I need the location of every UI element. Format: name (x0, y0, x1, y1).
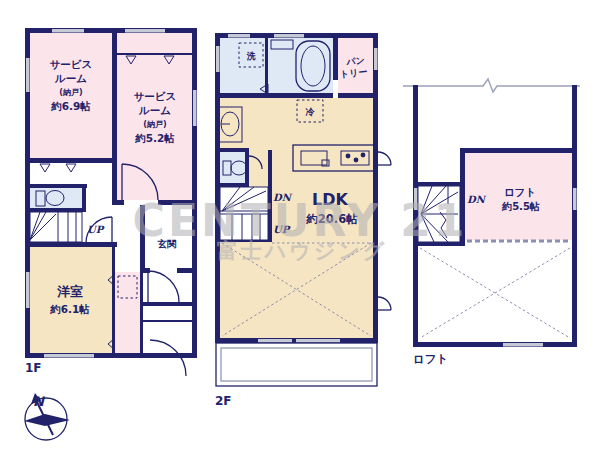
loft-break-line (403, 79, 580, 92)
1f-service-room2-line1: サービス (134, 90, 177, 102)
1f-service-room2-size: 約5.2帖 (134, 132, 175, 144)
floor-plan-page: サービス ルーム (納戸) 約6.9帖 サービス ルーム (納戸) 約5.2帖 … (0, 0, 600, 450)
2f-fridge-label: 冷 (306, 107, 316, 117)
2f-laundry-label: 洗 (247, 51, 257, 61)
2f-floor-label: 2F (215, 394, 232, 408)
loft-floor-label: ロフト (413, 352, 448, 366)
1f-service-room2-line2: ルーム (138, 104, 171, 116)
1f-stairs-up-label: UP (87, 224, 105, 235)
2f-pantry-line1: パン (345, 55, 365, 67)
loft-room-size: 約5.5帖 (501, 201, 540, 212)
loft-void-area (420, 248, 570, 338)
compass-icon: N (24, 393, 70, 440)
1f-western-room-size: 約6.1帖 (49, 303, 90, 315)
compass-north-label: N (33, 394, 46, 409)
watermark-company: 富士ハウジング (217, 239, 387, 263)
1f-floor-label: 1F (25, 361, 42, 375)
loft-stairs-dn-label: DN (467, 194, 487, 205)
1f-service-room1-line1: サービス (50, 58, 93, 70)
1f-service-room2-line3: (納戸) (143, 120, 166, 129)
2f-balcony (216, 343, 377, 386)
1f-service-room1-line3: (納戸) (59, 88, 82, 97)
1f-western-room-name: 洋室 (57, 284, 83, 299)
loft-room-name: ロフト (504, 186, 536, 198)
1f-service-room1-line2: ルーム (54, 72, 87, 84)
floor-plan-drawing: サービス ルーム (納戸) 約6.9帖 サービス ルーム (納戸) 約5.2帖 … (0, 0, 600, 450)
1f-service-room1-size: 約6.9帖 (50, 100, 91, 112)
1f-stairs (30, 212, 82, 242)
